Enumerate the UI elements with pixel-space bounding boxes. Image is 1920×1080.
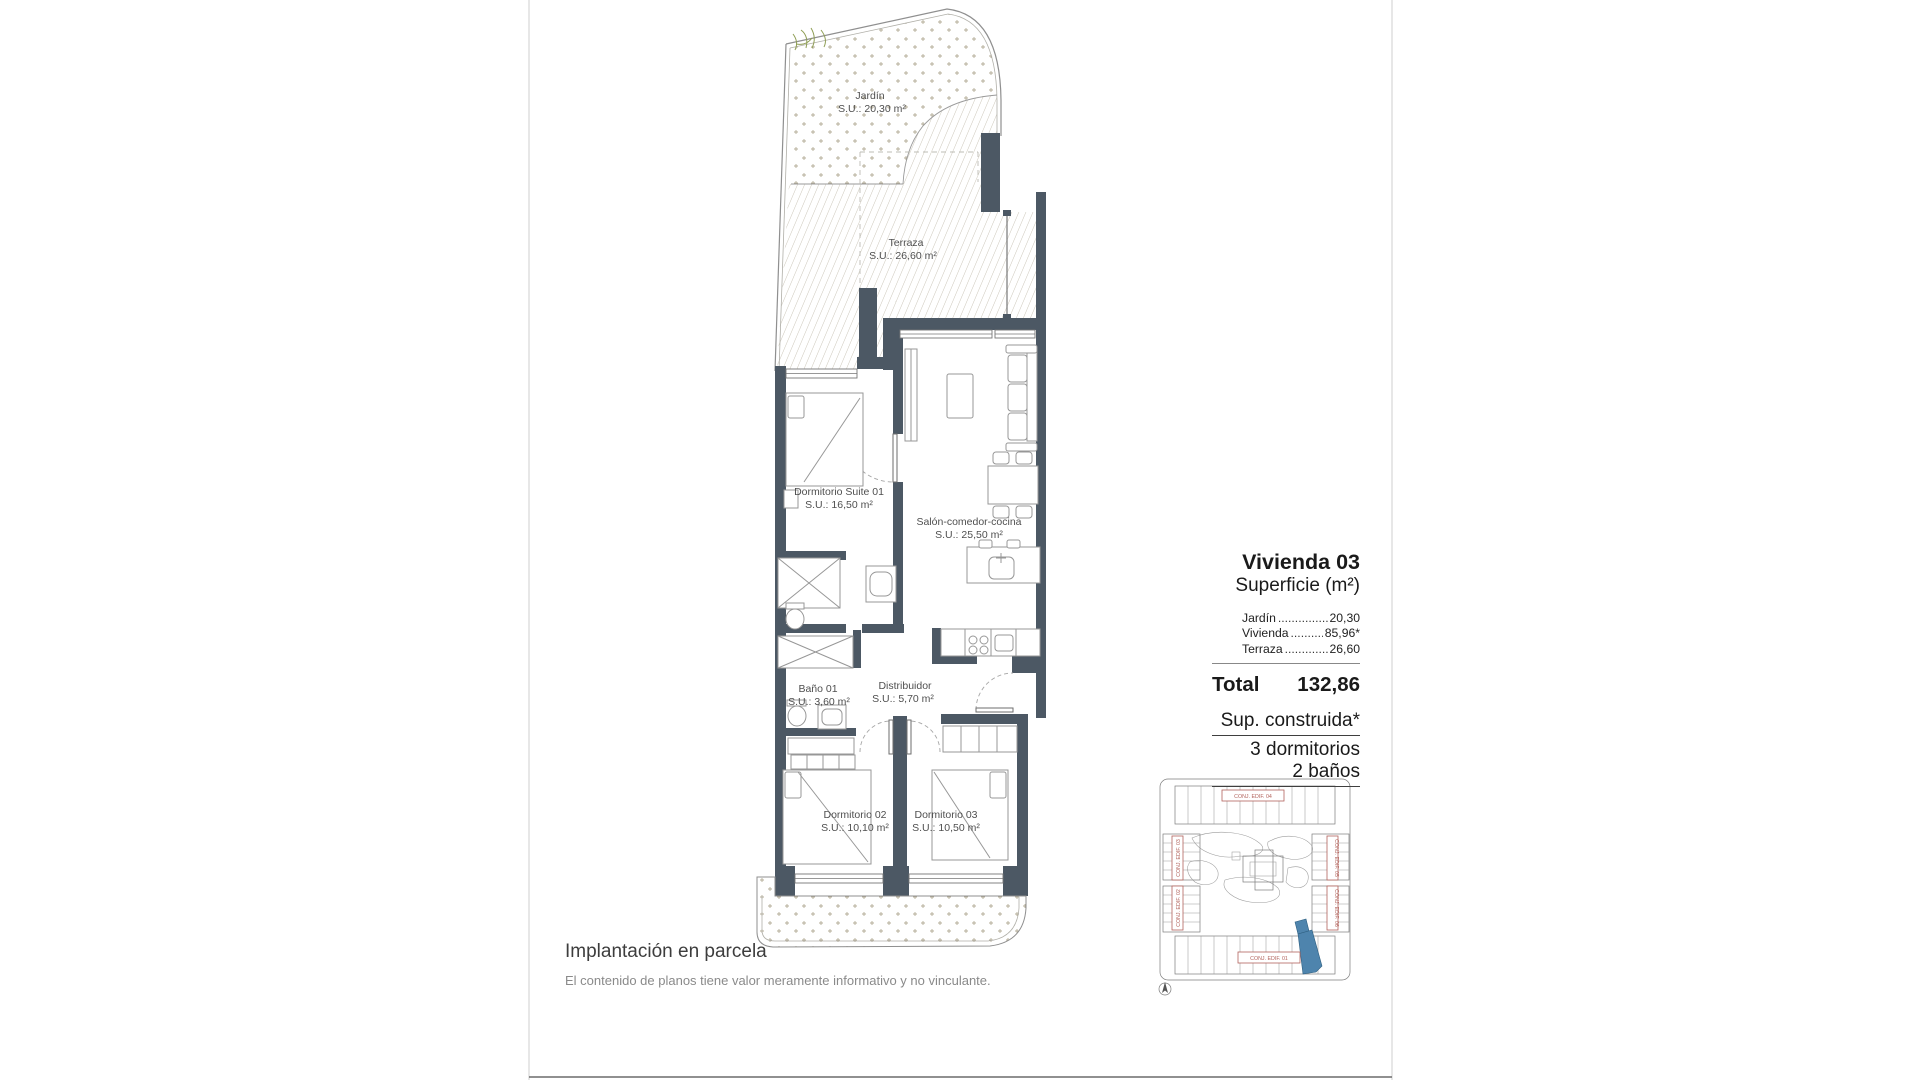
unit-title: Vivienda 03	[1212, 550, 1360, 574]
summary-panel: Vivienda 03 Superficie (m²) Jardín .....…	[1212, 550, 1360, 791]
site-plan: CONJ. EDIF. 04 CONJ. EDIF. 01 CONJ. EDIF…	[1159, 779, 1350, 995]
label-bano: Baño 01	[798, 683, 837, 695]
label-edif03: CONJ. EDIF. 03	[1176, 839, 1182, 877]
label-distribuidor-area: S.U.: 5,70 m²	[872, 693, 934, 705]
footer-disclaimer: El contenido de planos tiene valor meram…	[565, 973, 991, 988]
ensuite-fixtures	[778, 558, 896, 629]
label-edif02: CONJ. EDIF. 02	[1176, 889, 1182, 927]
divider	[1212, 663, 1360, 664]
label-edif06: CONJ. EDIF. 06	[1333, 889, 1339, 927]
north-arrow-icon	[1159, 982, 1171, 995]
label-suite: Dormitorio Suite 01	[794, 486, 884, 498]
plan-sheet: Jardín S.U.: 20,30 m² Terraza S.U.: 26,6…	[0, 0, 1920, 1080]
total-value: 132,86	[1297, 673, 1360, 697]
label-edif05: CONJ. EDIF. 05	[1333, 839, 1339, 877]
label-distribuidor: Distribuidor	[878, 680, 932, 692]
highlight-lower	[1298, 930, 1322, 974]
label-jardin-area: S.U.: 20,30 m²	[838, 103, 906, 115]
note-sup-construida: Sup. construida*	[1212, 711, 1360, 736]
row-leader-dots: ..............	[1285, 642, 1328, 657]
row-leader-dots: ..........	[1291, 626, 1323, 641]
label-jardin: Jardín	[855, 90, 884, 102]
total-row: Total 132,86	[1212, 673, 1360, 697]
floor-plan: Jardín S.U.: 20,30 m² Terraza S.U.: 26,6…	[757, 9, 1046, 947]
row-value: 85,96*	[1325, 626, 1360, 641]
label-suite-area: S.U.: 16,50 m²	[805, 499, 873, 511]
label-dorm02-area: S.U.: 10,10 m²	[821, 822, 889, 834]
dorm03-furniture	[932, 726, 1017, 860]
label-edif04: CONJ. EDIF. 04	[1234, 794, 1272, 800]
surface-subtitle: Superficie (m²)	[1212, 574, 1360, 597]
total-label: Total	[1212, 673, 1259, 697]
row-label: Jardín	[1242, 611, 1276, 626]
label-dorm03-area: S.U.: 10,50 m²	[912, 822, 980, 834]
label-salon-area: S.U.: 25,50 m²	[935, 529, 1003, 541]
label-dorm02: Dormitorio 02	[823, 809, 886, 821]
label-edif01: CONJ. EDIF. 01	[1250, 956, 1288, 962]
surface-row-vivienda: Vivienda .......... 85,96*	[1242, 626, 1360, 641]
label-dorm03: Dormitorio 03	[914, 809, 977, 821]
row-label: Terraza	[1242, 642, 1283, 657]
note-banos: 2 baños	[1212, 762, 1360, 787]
surface-row-terraza: Terraza .............. 26,60	[1242, 642, 1360, 657]
footer-title: Implantación en parcela	[565, 941, 991, 963]
salon-furniture	[941, 345, 1040, 656]
label-salon: Salón-comedor-cocina	[916, 516, 1021, 528]
site-center	[1188, 832, 1313, 902]
note-dormitorios: 3 dormitorios	[1212, 740, 1360, 760]
label-terraza-area: S.U.: 26,60 m²	[869, 250, 937, 262]
surface-table: Jardín ............... 20,30 Vivienda ..…	[1242, 611, 1360, 657]
surface-row-jardin: Jardín ............... 20,30	[1242, 611, 1360, 626]
row-label: Vivienda	[1242, 626, 1289, 641]
label-terraza: Terraza	[888, 237, 923, 249]
footer: Implantación en parcela El contenido de …	[565, 941, 991, 988]
label-bano-area: S.U.: 3,60 m²	[788, 696, 850, 708]
site-buildings	[1163, 786, 1349, 974]
row-value: 26,60	[1330, 642, 1361, 657]
bathroom-fixtures	[778, 636, 854, 754]
row-leader-dots: ...............	[1278, 611, 1328, 626]
row-value: 20,30	[1330, 611, 1361, 626]
drawing-canvas: Jardín S.U.: 20,30 m² Terraza S.U.: 26,6…	[0, 0, 1920, 1080]
